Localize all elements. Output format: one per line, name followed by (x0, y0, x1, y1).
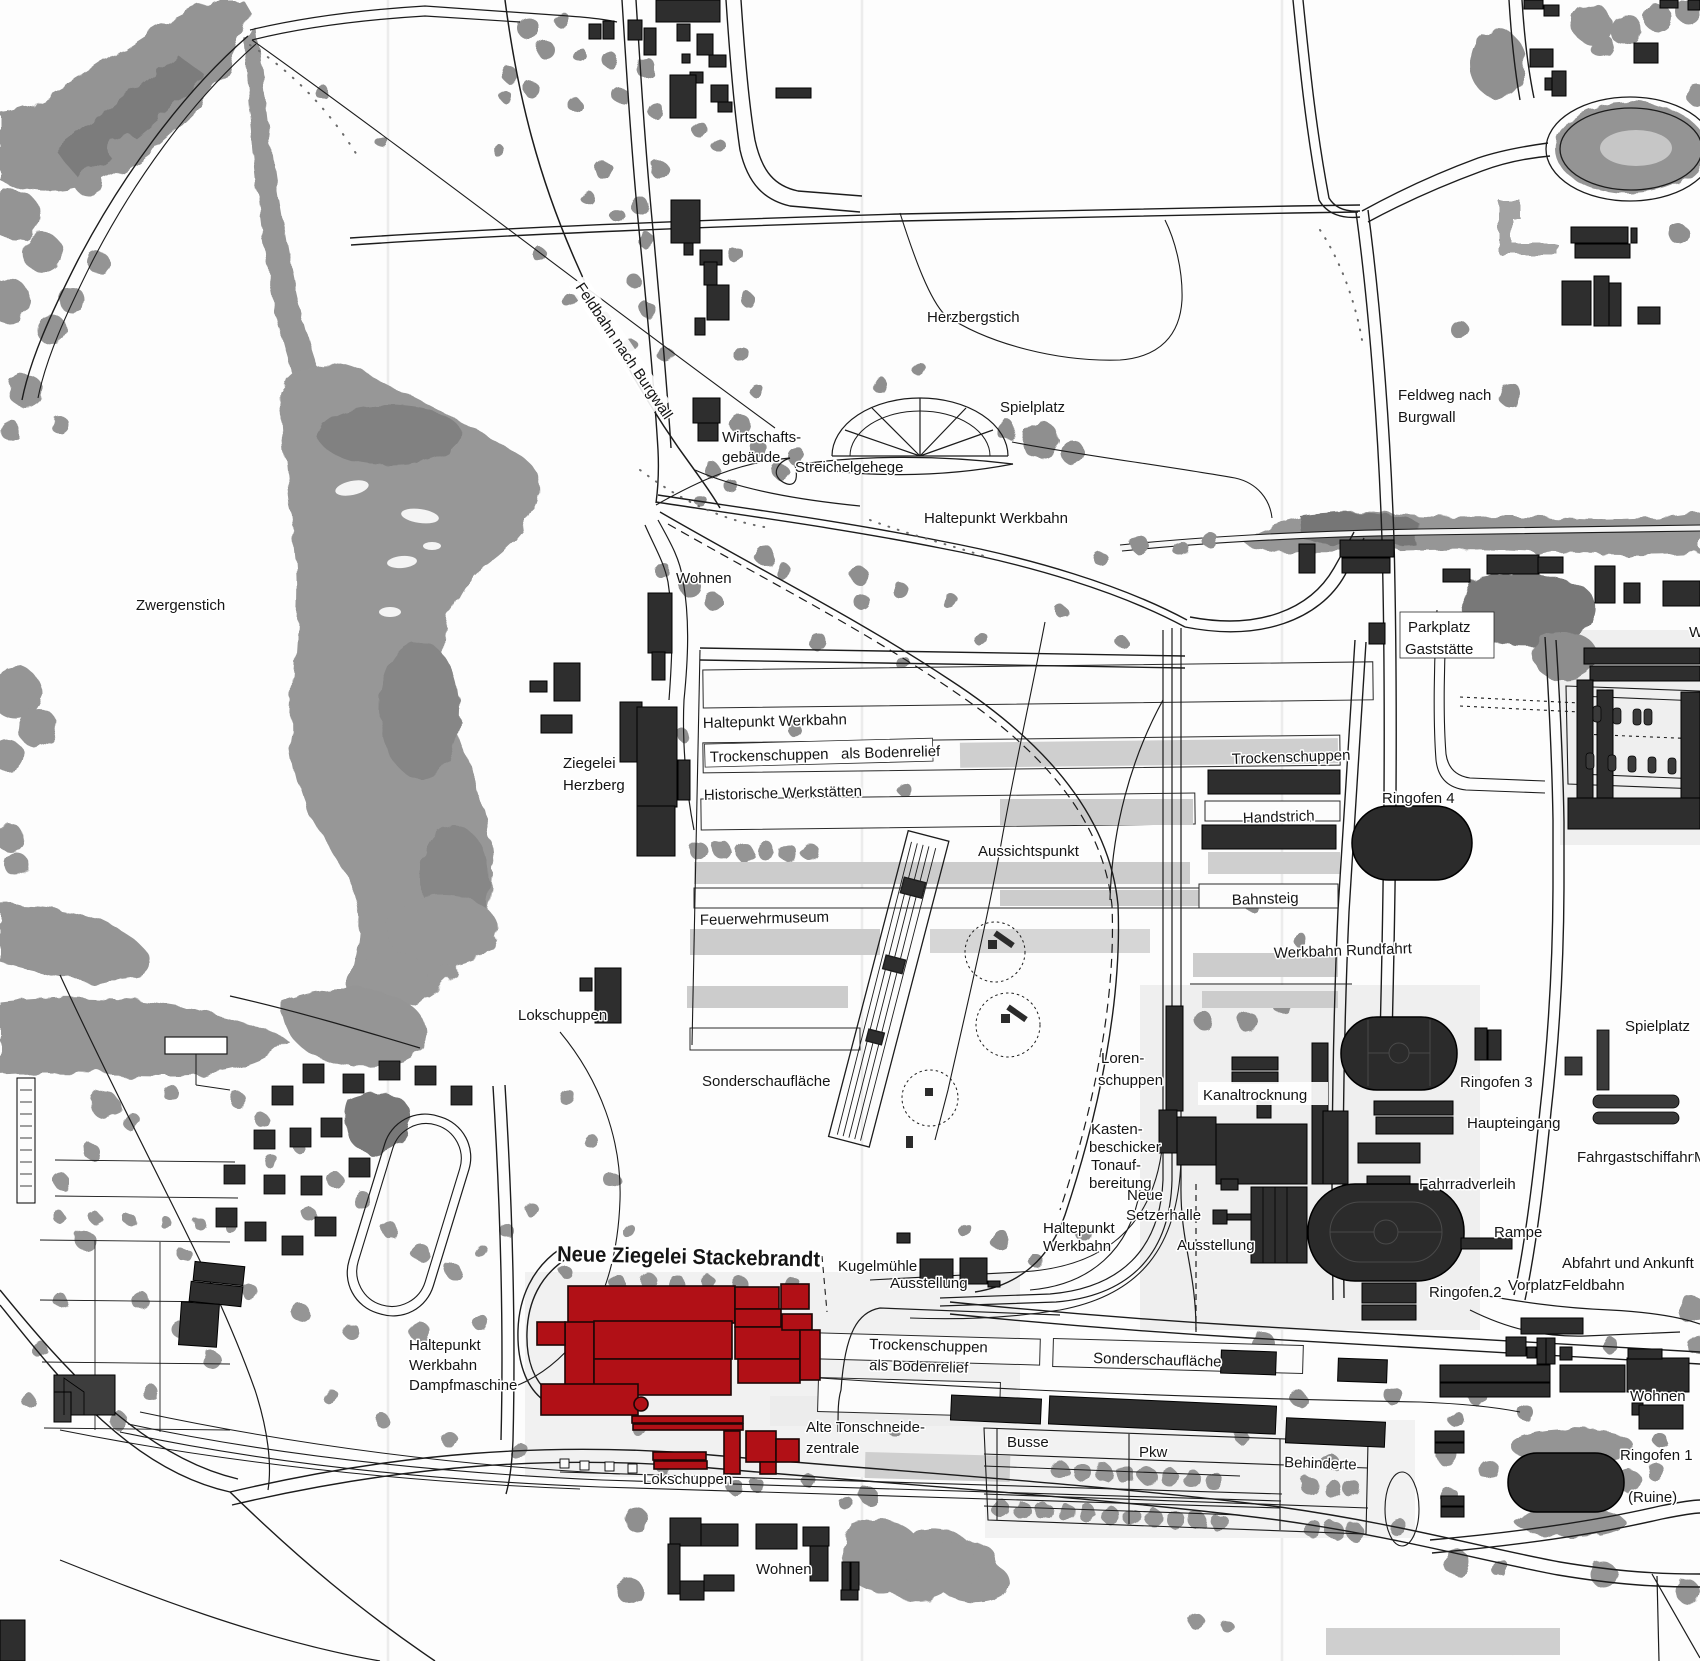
svg-text:Fahrradverleih: Fahrradverleih (1419, 1176, 1516, 1193)
svg-text:Parkplatz: Parkplatz (1408, 619, 1471, 636)
svg-text:Sonderschaufläche: Sonderschaufläche (1093, 1350, 1222, 1371)
svg-text:Sonderschaufläche: Sonderschaufläche (702, 1073, 830, 1090)
svg-text:Vorplatz: Vorplatz (1508, 1277, 1562, 1294)
svg-text:Feldweg nach: Feldweg nach (1398, 387, 1491, 404)
svg-text:als Bodenrelief: als Bodenrelief (869, 1357, 969, 1377)
svg-text:Wohnen: Wohnen (676, 570, 732, 587)
svg-text:Lokschuppen: Lokschuppen (518, 1007, 607, 1024)
svg-text:Feldbahn: Feldbahn (1562, 1277, 1625, 1294)
svg-text:Trockenschuppen: Trockenschuppen (869, 1336, 988, 1356)
svg-text:Kanaltrocknung: Kanaltrocknung (1203, 1087, 1307, 1104)
svg-text:Ziegelei: Ziegelei (563, 755, 616, 772)
svg-text:W: W (1689, 624, 1700, 641)
svg-text:Gaststätte: Gaststätte (1405, 641, 1473, 658)
svg-text:Abfahrt und Ankunft: Abfahrt und Ankunft (1562, 1255, 1695, 1272)
svg-text:Aussichtspunkt: Aussichtspunkt (978, 843, 1080, 860)
svg-text:Handstrich: Handstrich (1243, 808, 1315, 827)
svg-text:Werkbahn: Werkbahn (1043, 1238, 1111, 1255)
svg-text:Haltepunkt: Haltepunkt (409, 1337, 482, 1354)
svg-text:Kasten-: Kasten- (1091, 1121, 1143, 1138)
svg-text:Ausstellung: Ausstellung (1177, 1237, 1255, 1254)
svg-text:Tonauf-: Tonauf- (1091, 1157, 1141, 1174)
svg-text:Ausstellung: Ausstellung (890, 1275, 968, 1292)
svg-text:zentrale: zentrale (806, 1440, 859, 1457)
svg-text:Bahnsteig: Bahnsteig (1232, 890, 1299, 909)
svg-text:Herzberg: Herzberg (563, 777, 625, 794)
svg-text:Ringofen 4: Ringofen 4 (1382, 790, 1455, 807)
svg-text:Wohnen: Wohnen (756, 1561, 812, 1578)
svg-text:Herzbergstich: Herzbergstich (927, 309, 1020, 326)
svg-text:Setzerhalle: Setzerhalle (1126, 1207, 1201, 1224)
svg-text:gebäude: gebäude (722, 449, 780, 466)
svg-text:Haltepunkt Werkbahn: Haltepunkt Werkbahn (924, 510, 1068, 527)
svg-text:Burgwall: Burgwall (1398, 409, 1456, 426)
svg-text:Wohnen: Wohnen (1630, 1388, 1686, 1405)
svg-text:Streichelgehege: Streichelgehege (795, 459, 903, 476)
svg-text:Spielplatz: Spielplatz (1625, 1018, 1690, 1035)
svg-text:Haupteingang: Haupteingang (1467, 1115, 1560, 1132)
svg-text:Werkbahn: Werkbahn (409, 1357, 477, 1374)
svg-text:Zwergenstich: Zwergenstich (136, 597, 225, 614)
svg-text:schuppen: schuppen (1098, 1072, 1163, 1089)
svg-text:Neue: Neue (1127, 1187, 1163, 1204)
svg-text:Haltepunkt: Haltepunkt (1043, 1220, 1116, 1237)
svg-text:Ringofen 2: Ringofen 2 (1429, 1284, 1502, 1301)
svg-text:Spielplatz: Spielplatz (1000, 399, 1065, 416)
svg-text:Fahrgastschiffahrt: Fahrgastschiffahrt (1577, 1149, 1698, 1166)
svg-text:beschicker: beschicker (1089, 1139, 1161, 1156)
svg-text:Lokschuppen: Lokschuppen (643, 1471, 732, 1488)
svg-text:Dampfmaschine: Dampfmaschine (409, 1377, 517, 1394)
svg-text:Pkw: Pkw (1139, 1444, 1168, 1461)
svg-text:Busse: Busse (1007, 1434, 1049, 1451)
svg-text:M: M (1694, 1149, 1700, 1166)
svg-text:Ringofen 1: Ringofen 1 (1620, 1447, 1693, 1464)
svg-text:Feuerwehrmuseum: Feuerwehrmuseum (700, 909, 830, 929)
svg-text:(Ruine): (Ruine) (1628, 1489, 1677, 1506)
svg-text:Kugelmühle: Kugelmühle (838, 1258, 917, 1275)
svg-text:Behinderte: Behinderte (1284, 1454, 1357, 1474)
svg-text:Ringofen 3: Ringofen 3 (1460, 1074, 1533, 1091)
svg-text:Loren-: Loren- (1101, 1050, 1144, 1067)
svg-text:Wirtschafts-: Wirtschafts- (722, 429, 801, 446)
svg-text:Alte Tonschneide-: Alte Tonschneide- (806, 1419, 925, 1436)
svg-text:Rampe: Rampe (1494, 1224, 1542, 1241)
